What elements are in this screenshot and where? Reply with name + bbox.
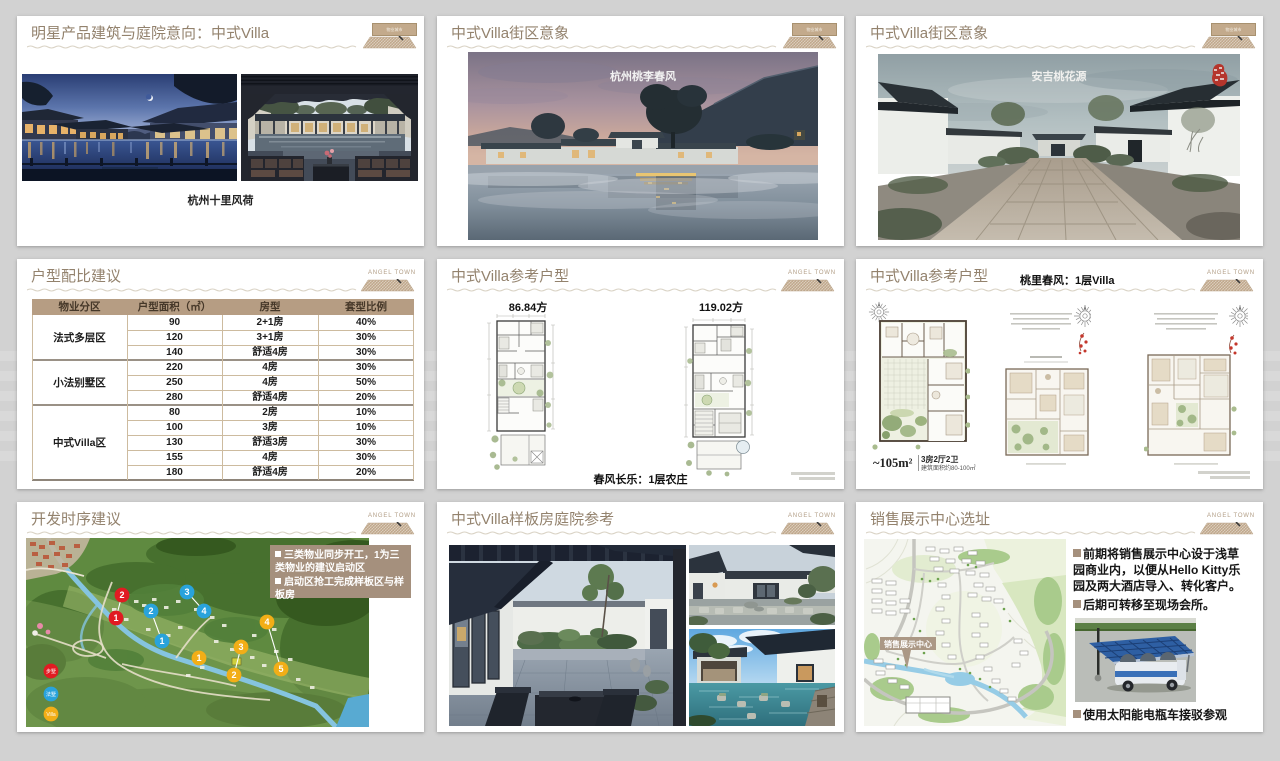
- svg-text:杭州桃李春风: 杭州桃李春风: [610, 69, 676, 83]
- svg-text:销售展示中心: 销售展示中心: [884, 639, 932, 649]
- svg-text:4: 4: [201, 606, 206, 616]
- svg-text:法墅: 法墅: [46, 691, 56, 698]
- svg-text:步墅: 步墅: [46, 668, 56, 675]
- svg-text:1: 1: [159, 636, 164, 646]
- svg-text:2: 2: [231, 670, 236, 680]
- svg-text:5: 5: [278, 664, 283, 674]
- svg-text:3: 3: [184, 587, 189, 597]
- svg-text:2: 2: [119, 590, 124, 600]
- svg-text:4: 4: [264, 617, 269, 627]
- svg-text:2: 2: [148, 606, 153, 616]
- svg-text:Villa: Villa: [46, 712, 56, 718]
- svg-text:1: 1: [113, 613, 118, 623]
- svg-text:1: 1: [196, 653, 201, 663]
- svg-text:3: 3: [238, 642, 243, 652]
- svg-text:安吉桃花源: 安吉桃花源: [1032, 69, 1087, 83]
